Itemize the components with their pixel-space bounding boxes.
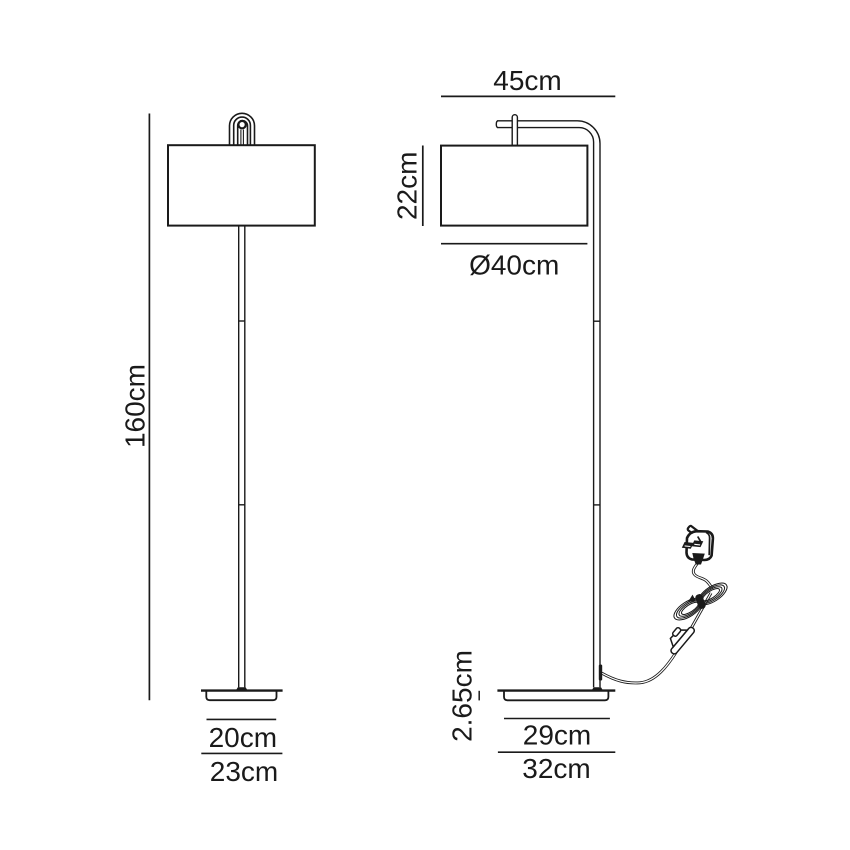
svg-text:23cm: 23cm (210, 756, 278, 787)
svg-text:32cm: 32cm (522, 753, 590, 784)
svg-text:20cm: 20cm (209, 722, 277, 753)
svg-text:45cm: 45cm (493, 65, 561, 96)
svg-text:160cm: 160cm (120, 364, 151, 448)
svg-text:2.65cm: 2.65cm (447, 650, 478, 742)
svg-text:Ø40cm: Ø40cm (469, 250, 559, 281)
svg-text:22cm: 22cm (391, 152, 422, 220)
svg-text:29cm: 29cm (523, 720, 591, 751)
